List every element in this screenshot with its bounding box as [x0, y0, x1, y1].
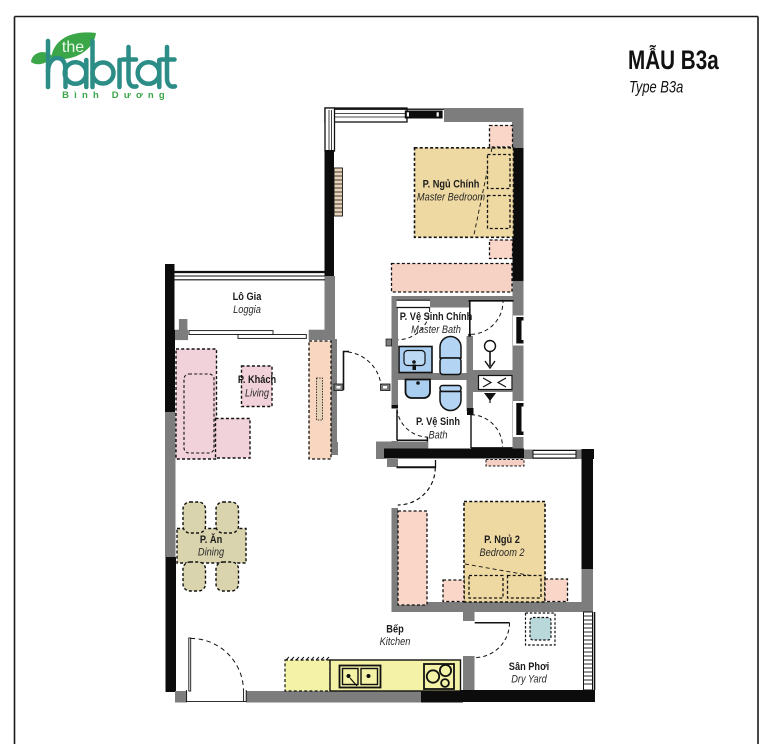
svg-text:Loggia: Loggia: [233, 304, 261, 316]
svg-text:Lô Gia: Lô Gia: [233, 291, 262, 303]
svg-text:Type B3a: Type B3a: [629, 78, 683, 97]
svg-text:P. Ngủ Chính: P. Ngủ Chính: [423, 179, 480, 191]
svg-text:Dry Yard: Dry Yard: [511, 674, 547, 686]
svg-text:Living: Living: [245, 388, 269, 400]
svg-text:MẪU B3a: MẪU B3a: [628, 43, 719, 75]
svg-text:Bình Dương: Bình Dương: [62, 90, 170, 101]
svg-text:Bedroom 2: Bedroom 2: [479, 547, 524, 559]
svg-text:Bếp: Bếp: [386, 623, 403, 636]
svg-text:Bath: Bath: [429, 430, 448, 442]
svg-text:P. Khách: P. Khách: [238, 374, 276, 386]
svg-text:P. Ngủ 2: P. Ngủ 2: [484, 534, 520, 546]
svg-text:Kitchen: Kitchen: [380, 636, 411, 648]
svg-text:Sân Phơi: Sân Phơi: [509, 661, 550, 673]
svg-text:Master Bath: Master Bath: [411, 324, 461, 336]
svg-text:P. Vệ Sinh Chính: P. Vệ Sinh Chính: [400, 311, 473, 323]
svg-text:the: the: [62, 39, 84, 56]
svg-text:Master Bedroom: Master Bedroom: [417, 192, 485, 204]
svg-text:P. Vệ Sinh: P. Vệ Sinh: [416, 416, 460, 428]
svg-text:Dining: Dining: [198, 547, 224, 559]
svg-text:P. Ăn: P. Ăn: [200, 532, 222, 546]
